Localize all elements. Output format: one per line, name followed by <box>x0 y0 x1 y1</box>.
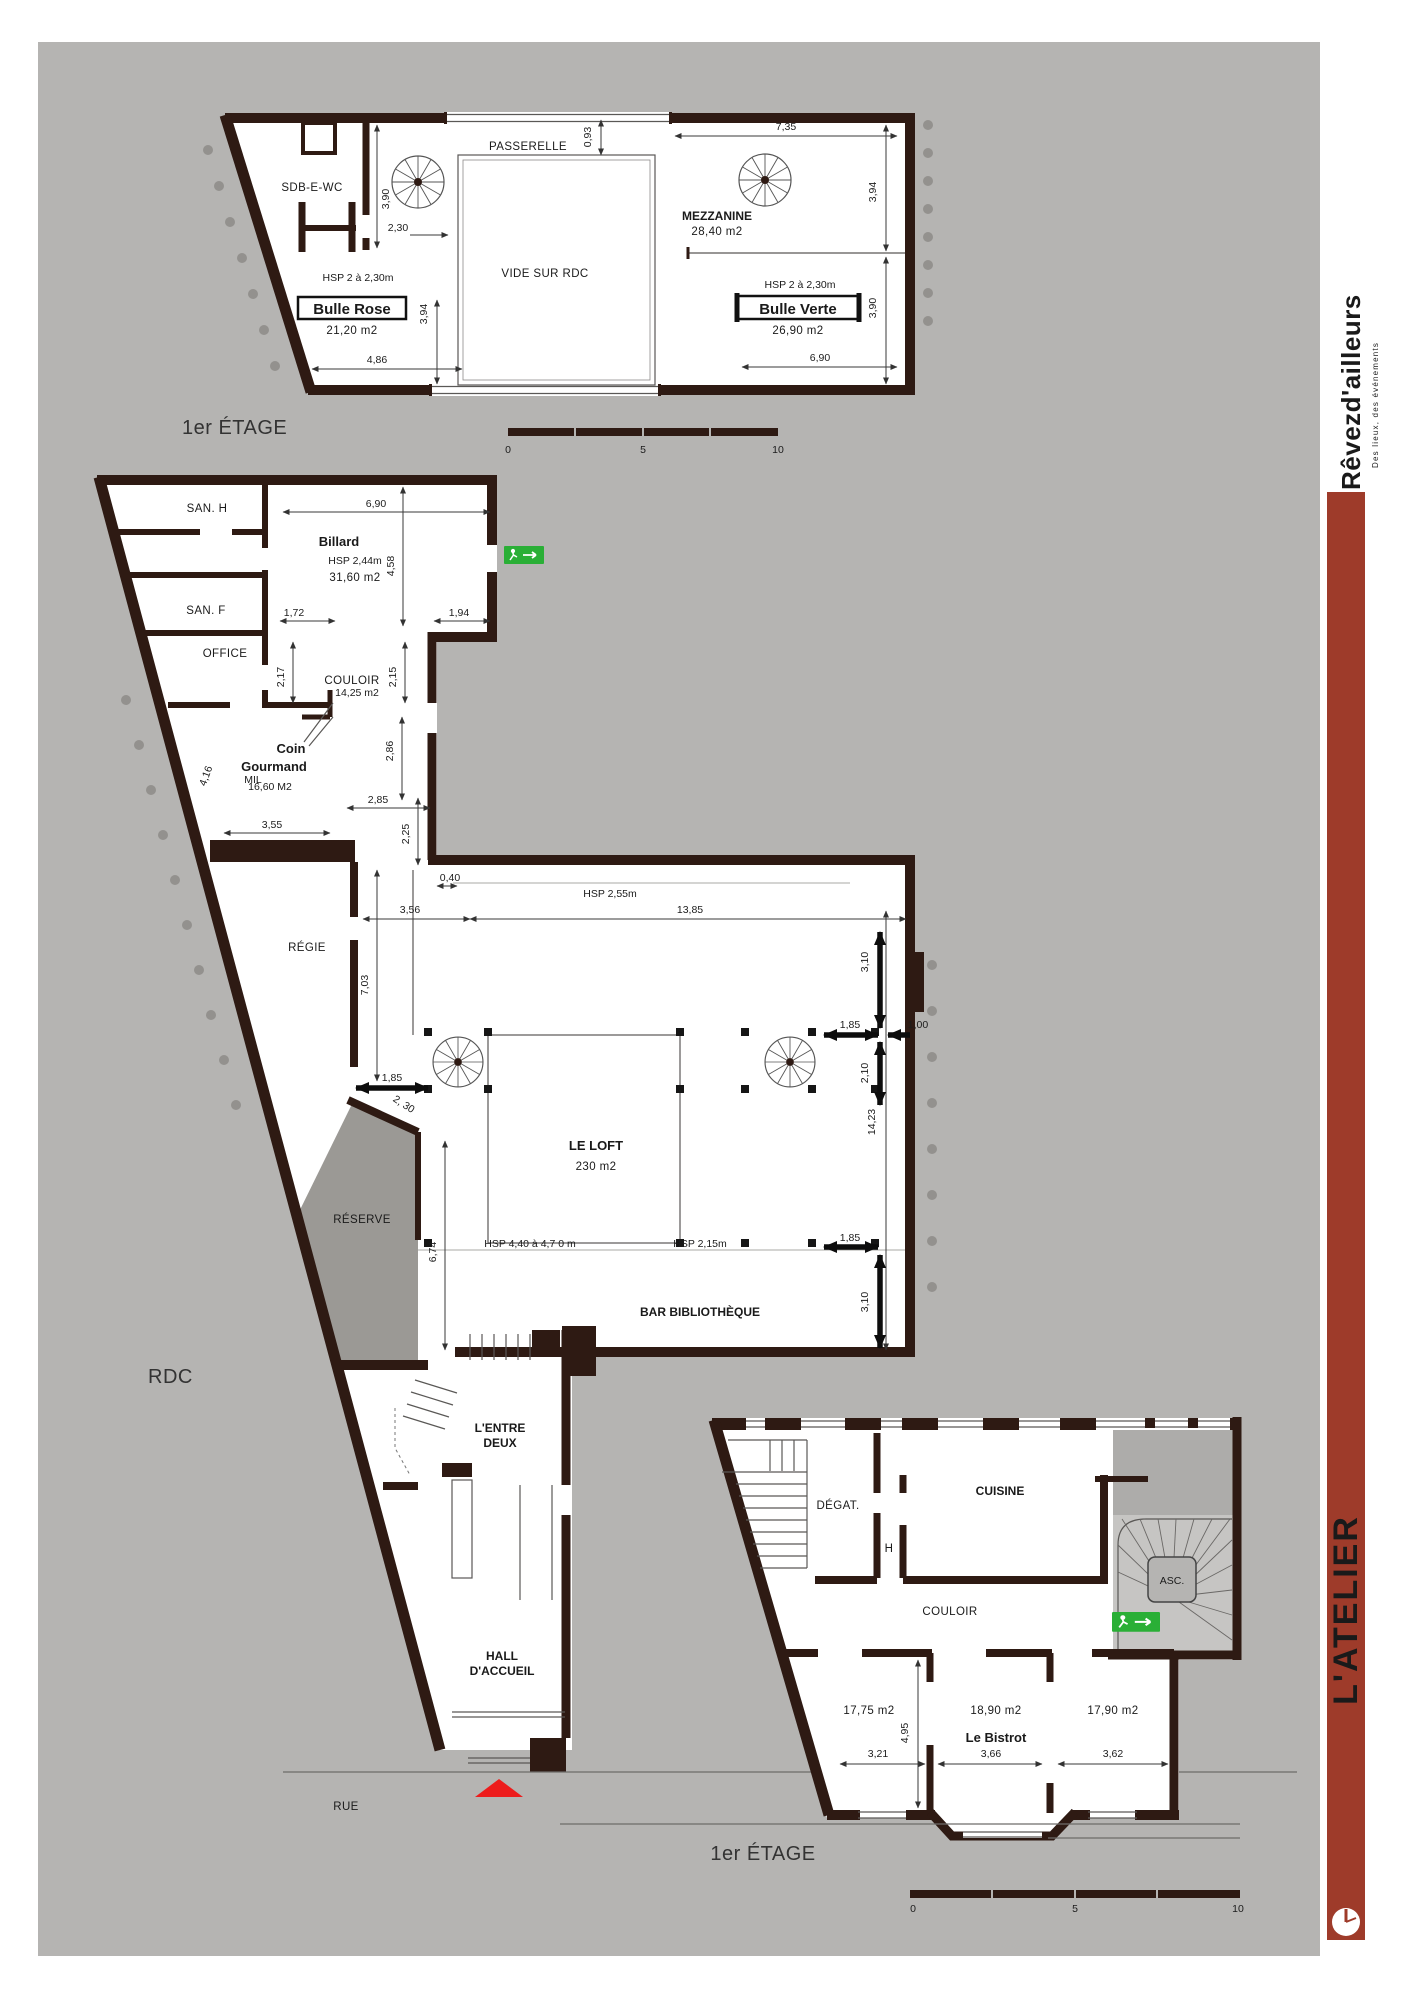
room-label-office: OFFICE <box>203 648 248 660</box>
dim-100: 1,00 <box>908 1019 929 1031</box>
spiral-stair-icon <box>739 154 791 206</box>
dim-458: 4,58 <box>385 556 397 577</box>
dim-486: 4,86 <box>367 354 388 366</box>
room-label-san-h: SAN. H <box>187 503 228 515</box>
brand-sidebar: Rêvezd'ailleurs Des lieux, des événement… <box>1327 294 1380 1940</box>
exit-sign-icon <box>504 546 544 564</box>
room-label-h: H <box>885 1543 894 1555</box>
dim-1423: 14,23 <box>866 1109 878 1135</box>
dim-356: 3,56 <box>400 904 421 916</box>
dim-355: 3,55 <box>262 819 283 831</box>
scale-five: 5 <box>1072 1903 1078 1915</box>
dim-185-right: 1,85 <box>840 1019 861 1031</box>
room-label-entre-1: L'ENTRE <box>475 1421 526 1435</box>
room-label-billard: Billard <box>319 534 360 549</box>
dim-394-right: 3,94 <box>867 182 879 203</box>
area-1775: 17,75 m2 <box>843 1705 894 1717</box>
scale-ten: 10 <box>1232 1903 1244 1915</box>
room-label-passerelle: PASSERELLE <box>489 141 567 153</box>
room-label-hall-1: HALL <box>486 1649 518 1663</box>
street-label: RUE <box>333 1801 358 1813</box>
area-couloir: 14,25 m2 <box>335 687 379 699</box>
dim-321: 3,21 <box>868 1748 889 1760</box>
room-label-san-f: SAN. F <box>186 605 225 617</box>
plan-title-rdc: RDC <box>148 1366 193 1388</box>
scale-ten: 10 <box>772 444 784 456</box>
dim-185-left: 1,85 <box>382 1072 403 1084</box>
area-loft: 230 m2 <box>576 1161 617 1173</box>
dim-390-left: 3,90 <box>380 189 392 210</box>
spiral-stair-icon <box>433 1037 483 1087</box>
room-label-bulle-verte: Bulle Verte <box>759 301 837 318</box>
area-1890: 18,90 m2 <box>970 1705 1021 1717</box>
room-label-sdb: SDB-E-WC <box>281 182 342 194</box>
hsp-label-right: HSP 2 à 2,30m <box>764 279 835 291</box>
dim-690-rdc: 6,90 <box>366 498 387 510</box>
area-bulle-verte: 26,90 m2 <box>772 325 823 337</box>
spiral-stair-icon <box>392 156 444 208</box>
floorplan-drawing: SDB-E-WC PASSERELLE 0,93 7,35 MEZZANINE … <box>0 0 1414 2000</box>
exit-sign-stairs-icon <box>1112 1612 1160 1632</box>
dim-394-left: 3,94 <box>418 304 430 325</box>
spiral-stair-icon <box>765 1037 815 1087</box>
room-label-asc: ASC. <box>1160 1575 1185 1587</box>
dim-390-right: 3,90 <box>867 298 879 319</box>
room-label-hall-2: D'ACCUEIL <box>470 1664 535 1678</box>
room-label-regie: RÉGIE <box>288 941 326 954</box>
dim-362: 3,62 <box>1103 1748 1124 1760</box>
hsp-loft: HSP 2,55m <box>583 888 637 900</box>
dim-495: 4,95 <box>899 1723 911 1744</box>
plan-top-floor: SDB-E-WC PASSERELLE 0,93 7,35 MEZZANINE … <box>203 112 933 396</box>
hsp-billard: HSP 2,44m <box>328 555 382 567</box>
area-bulle-rose: 21,20 m2 <box>326 325 377 337</box>
scale-zero: 0 <box>505 444 511 456</box>
dim-210: 2,10 <box>859 1063 871 1084</box>
dim-735: 7,35 <box>776 121 797 133</box>
hsp-label-left: HSP 2 à 2,30m <box>322 272 393 284</box>
dim-194: 1,94 <box>449 607 470 619</box>
dim-217: 2,17 <box>275 667 287 688</box>
area-mil: 16,60 M2 <box>248 781 292 793</box>
dim-093: 0,93 <box>582 127 594 148</box>
brand-name: L'ATELIER <box>1327 1515 1365 1705</box>
dim-310-top: 3,10 <box>859 952 871 973</box>
room-label-coin-2: Gourmand <box>241 759 307 774</box>
room-label-bulle-rose: Bulle Rose <box>313 301 391 318</box>
dim-674: 6,74 <box>427 1242 439 1263</box>
room-label-vide: VIDE SUR RDC <box>501 268 588 280</box>
dim-703: 7,03 <box>359 975 371 996</box>
dim-185-bottom: 1,85 <box>840 1232 861 1244</box>
scale-zero: 0 <box>910 1903 916 1915</box>
room-label-loft: LE LOFT <box>569 1138 623 1153</box>
room-label-degat: DÉGAT. <box>816 1499 859 1512</box>
room-label-bistrot: Le Bistrot <box>966 1730 1027 1745</box>
room-label-couloir-bistrot: COULOIR <box>922 1606 977 1618</box>
dim-040: 0,40 <box>440 872 461 884</box>
room-label-cuisine: CUISINE <box>976 1484 1025 1498</box>
room-label-bar-bibliotheque: BAR BIBLIOTHÈQUE <box>640 1304 760 1319</box>
area-mezzanine: 28,40 m2 <box>691 226 742 238</box>
room-label-entre-2: DEUX <box>483 1436 516 1450</box>
brand-tagline: Des lieux, des événements <box>1371 342 1380 468</box>
hsp-high: HSP 4,40 à 4,7 0 m <box>484 1238 576 1250</box>
area-1790: 17,90 m2 <box>1087 1705 1138 1717</box>
dim-366: 3,66 <box>981 1748 1002 1760</box>
brand-logo: Rêvezd'ailleurs <box>1336 294 1366 490</box>
room-label-couloir: COULOIR <box>324 675 379 687</box>
brand-clock-icon <box>1332 1908 1360 1936</box>
dim-310-bottom: 3,10 <box>859 1292 871 1313</box>
dim-286: 2,86 <box>384 741 396 762</box>
area-billard: 31,60 m2 <box>329 572 380 584</box>
dim-215: 2,15 <box>387 667 399 688</box>
scale-five: 5 <box>640 444 646 456</box>
room-label-coin-1: Coin <box>277 741 306 756</box>
dim-1385: 13,85 <box>677 904 703 916</box>
hsp-215: HSP 2,15m <box>673 1238 727 1250</box>
dim-285: 2,85 <box>368 794 389 806</box>
dim-172: 1,72 <box>284 607 305 619</box>
brand-bar <box>1327 492 1365 1940</box>
dim-690: 6,90 <box>810 352 831 364</box>
room-label-reserve: RÉSERVE <box>333 1213 391 1226</box>
dim-230: 2,30 <box>388 222 409 234</box>
room-label-mezzanine: MEZZANINE <box>682 209 752 223</box>
plan-title-bistrot: 1er ÉTAGE <box>710 1842 815 1865</box>
dim-225: 2,25 <box>400 824 412 845</box>
plan-title-top: 1er ÉTAGE <box>182 416 287 439</box>
floorplan-page: SDB-E-WC PASSERELLE 0,93 7,35 MEZZANINE … <box>0 0 1414 2000</box>
